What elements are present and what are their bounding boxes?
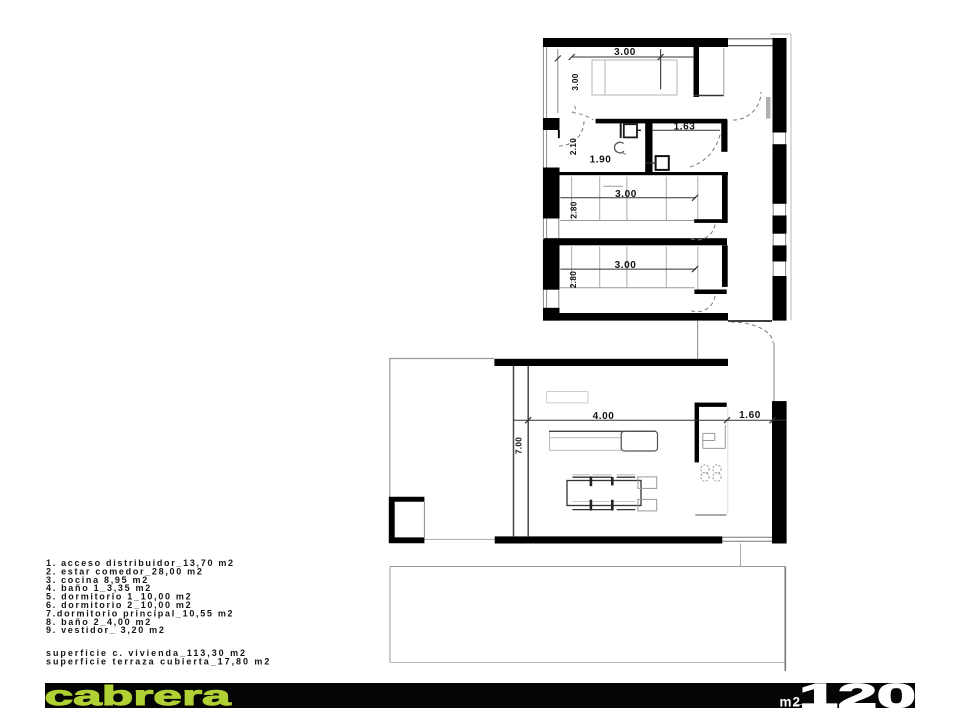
svg-text:2.10: 2.10 bbox=[569, 138, 578, 155]
svg-text:3.00: 3.00 bbox=[614, 47, 636, 58]
svg-text:9. vestidor_ 3,20 m2: 9. vestidor_ 3,20 m2 bbox=[46, 625, 166, 635]
svg-text:superficie terraza cubierta_17: superficie terraza cubierta_17,80 m2 bbox=[46, 656, 271, 666]
svg-text:cabrera: cabrera bbox=[44, 679, 231, 711]
svg-text:1.63: 1.63 bbox=[674, 121, 696, 132]
svg-text:3.00: 3.00 bbox=[615, 189, 637, 200]
svg-text:1.60: 1.60 bbox=[739, 410, 761, 421]
svg-text:2.80: 2.80 bbox=[570, 201, 579, 218]
svg-text:2.80: 2.80 bbox=[569, 271, 578, 288]
svg-text:3.00: 3.00 bbox=[615, 260, 637, 271]
svg-text:3.00: 3.00 bbox=[571, 73, 580, 90]
svg-text:4.00: 4.00 bbox=[593, 411, 615, 422]
svg-text:1.90: 1.90 bbox=[590, 155, 612, 166]
svg-text:7.00: 7.00 bbox=[515, 437, 524, 454]
svg-text:120: 120 bbox=[799, 677, 916, 715]
